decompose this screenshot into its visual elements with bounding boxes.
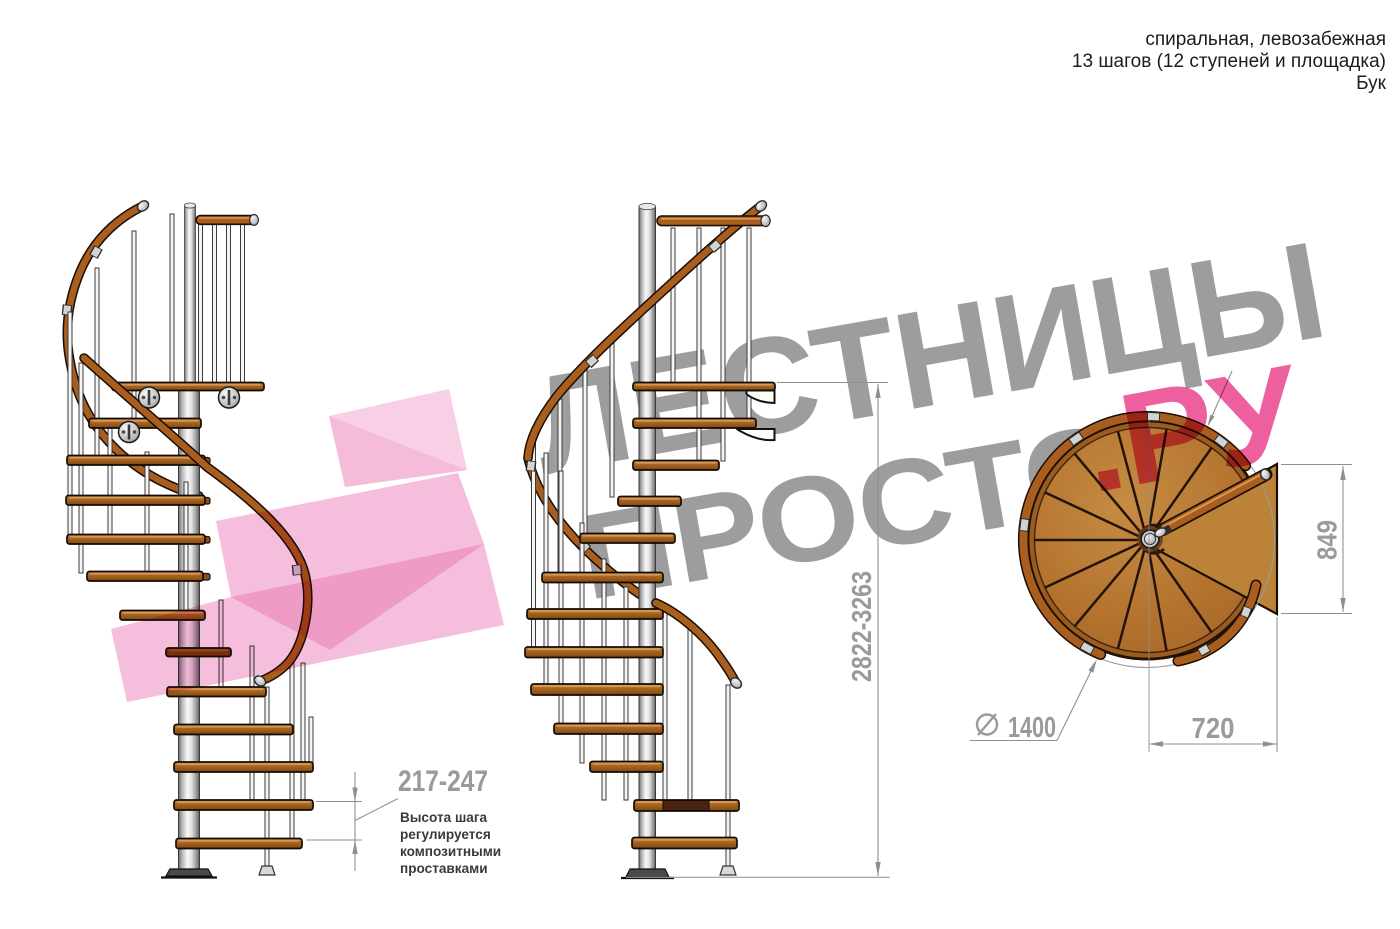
- svg-text:композитными: композитными: [400, 844, 501, 859]
- svg-text:Высота шага: Высота шага: [400, 810, 487, 825]
- svg-text:720: 720: [1192, 713, 1235, 745]
- svg-text:849: 849: [1312, 520, 1343, 560]
- svg-text:Бук: Бук: [1356, 73, 1387, 94]
- svg-text:проставками: проставками: [400, 861, 488, 876]
- svg-text:1400: 1400: [1008, 712, 1056, 744]
- svg-text:217-247: 217-247: [398, 765, 488, 798]
- svg-text:регулируется: регулируется: [400, 827, 491, 842]
- svg-text:2822-3263: 2822-3263: [846, 571, 877, 682]
- svg-text:спиральная, левозабежная: спиральная, левозабежная: [1145, 29, 1386, 50]
- svg-text:13 шагов (12 ступеней и площад: 13 шагов (12 ступеней и площадка): [1072, 51, 1386, 72]
